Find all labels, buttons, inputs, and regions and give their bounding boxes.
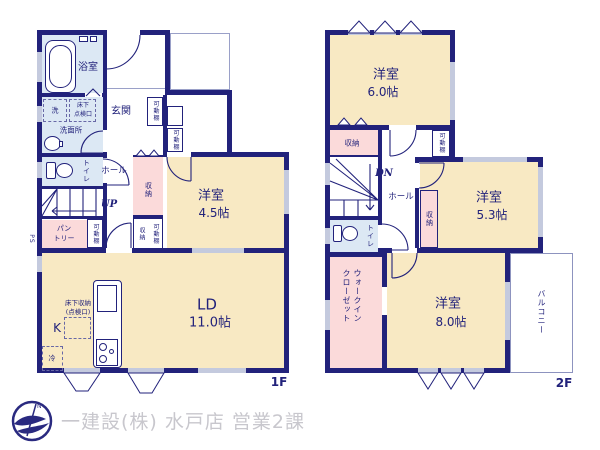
stairs-up-arrow [52, 207, 96, 215]
bathroom-folding-door [86, 89, 100, 96]
door-arc-west45 [167, 157, 191, 181]
label-wic-2: クローゼット [342, 269, 350, 323]
shutter-window-mark [64, 373, 100, 391]
label-hall-1f: ホール [101, 167, 127, 176]
label-storage-53: 収納 [426, 211, 433, 227]
closet-door-mark [149, 150, 159, 156]
label-kitchen: K [53, 322, 61, 334]
label-dn: DN [375, 169, 393, 179]
company-logo: N [13, 402, 51, 440]
label-fridge: 冷 [49, 356, 56, 363]
label-hatch-2: 点検口 [74, 112, 92, 118]
closet-door-mark [355, 118, 367, 125]
door-arc-washroom [81, 131, 103, 153]
label-west45-name: 洋室 [198, 190, 224, 203]
stairs-dn-arrow [366, 164, 374, 210]
label-wic-1: ウォークイン [353, 269, 361, 323]
label-storage-lower: 収納 [138, 227, 144, 241]
door-arc-west80 [392, 253, 417, 278]
label-floor-tag-1f: 1F [271, 376, 288, 388]
label-shelf-genkan: 可動棚 [152, 101, 158, 122]
label-shelf-2f: 可動棚 [438, 133, 444, 154]
label-storage-1f: 収納 [145, 182, 152, 198]
closet-door-mark [136, 150, 146, 156]
label-hatch-1: 床下 [77, 103, 89, 109]
casement-window-mark [400, 21, 422, 33]
label-washroom: 洗面所 [60, 126, 83, 134]
closet-door-mark [338, 118, 350, 125]
label-washer: 洗 [52, 108, 59, 115]
logo-n: N [37, 403, 42, 410]
stairs-1f [42, 189, 96, 216]
door-arc-ld [106, 223, 131, 248]
label-shelf-lower: 可動棚 [152, 224, 158, 245]
label-bathroom: 浴室 [78, 63, 98, 73]
label-ld: LD [197, 298, 217, 313]
casement-window-mark [464, 373, 484, 389]
label-shelf-2: 可動棚 [172, 130, 178, 151]
door-arc-entrance [106, 35, 140, 69]
label-west80-size: 8.0帖 [435, 316, 466, 328]
label-west80-name: 洋室 [435, 298, 461, 311]
casement-window-mark [441, 373, 461, 389]
label-west53-name: 洋室 [476, 192, 502, 205]
label-hall-2f: ホール [388, 193, 414, 202]
label-underfloor-1: 床下収納 [65, 300, 91, 307]
label-storage-2f: 収納 [345, 139, 360, 147]
label-west45-size: 4.5帖 [198, 207, 229, 219]
door-arc-west60 [390, 130, 416, 156]
label-entrance: 玄関 [111, 107, 131, 117]
label-pantry-2: トリー [54, 236, 75, 243]
label-ld-size: 11.0帖 [189, 317, 231, 330]
label-ps: PS [28, 234, 34, 243]
floorplan-canvas: N 浴室 洗 床下 点検口 洗面所 トイレ 玄関 ホール UP PS パン トリ… [0, 0, 600, 450]
door-arc-toilet-2f [382, 224, 408, 250]
label-west53-size: 5.3帖 [476, 209, 507, 221]
label-up: UP [101, 200, 117, 210]
label-toilet-1f: トイレ [83, 159, 90, 183]
label-west60-name: 洋室 [373, 69, 399, 82]
label-floor-tag-2f: 2F [556, 377, 573, 389]
logo-bird-wing [14, 416, 46, 426]
label-west60-size: 6.0帖 [367, 86, 398, 98]
label-toilet-2f: トイレ [367, 224, 374, 248]
label-balcony: バルコニー [537, 290, 545, 335]
company-name: 一建設(株) 水戸店 営業2課 [61, 407, 305, 434]
shutter-window-mark [128, 373, 164, 393]
stairs-2f [330, 159, 378, 216]
casement-window-mark [418, 373, 438, 389]
label-underfloor-2: (点検口) [66, 309, 91, 316]
label-shelf-pantry: 可動棚 [92, 224, 98, 245]
casement-window-mark [374, 21, 396, 33]
door-arc-west53 [419, 163, 444, 188]
casement-window-mark [348, 21, 370, 33]
label-pantry-1: パン [57, 226, 71, 233]
